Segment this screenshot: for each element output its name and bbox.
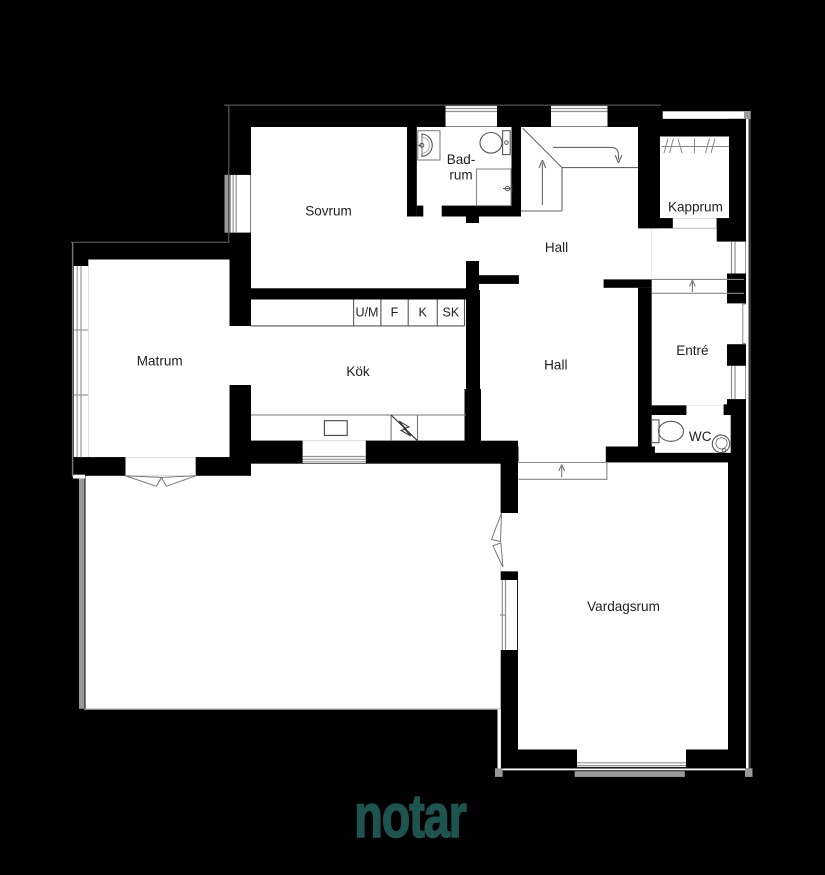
svg-text:rum: rum <box>449 167 472 182</box>
svg-text:SK: SK <box>443 306 460 320</box>
svg-text:WC: WC <box>689 429 712 444</box>
svg-text:F: F <box>391 306 399 320</box>
svg-text:U/M: U/M <box>356 306 379 320</box>
svg-text:Entré: Entré <box>676 343 708 358</box>
svg-text:Vardagsrum: Vardagsrum <box>587 599 660 614</box>
svg-text:K: K <box>419 306 428 320</box>
svg-text:Sovrum: Sovrum <box>305 204 352 219</box>
svg-text:Kök: Kök <box>346 364 370 379</box>
svg-text:Hall: Hall <box>544 358 567 373</box>
svg-text:Hall: Hall <box>545 240 568 255</box>
svg-text:Kapprum: Kapprum <box>668 200 723 215</box>
svg-text:Bad-: Bad- <box>447 152 476 167</box>
svg-text:Matrum: Matrum <box>137 353 183 368</box>
svg-text:notar: notar <box>354 782 466 851</box>
